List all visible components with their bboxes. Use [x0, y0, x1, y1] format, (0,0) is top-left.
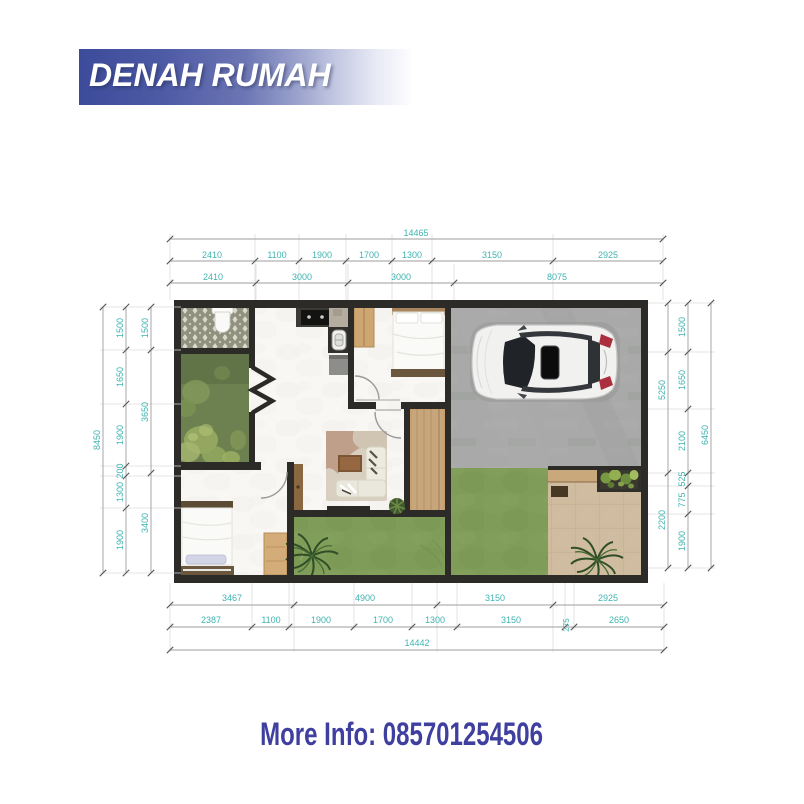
svg-text:8450: 8450: [92, 430, 102, 450]
svg-text:3400: 3400: [140, 513, 150, 533]
svg-text:2650: 2650: [609, 615, 629, 625]
svg-text:1300: 1300: [115, 482, 125, 502]
svg-text:6450: 6450: [700, 425, 710, 445]
svg-text:3150: 3150: [482, 250, 502, 260]
svg-text:2100: 2100: [677, 431, 687, 451]
svg-text:1500: 1500: [140, 318, 150, 338]
svg-text:1300: 1300: [402, 250, 422, 260]
svg-text:1300: 1300: [425, 615, 445, 625]
svg-text:1100: 1100: [261, 615, 280, 625]
svg-text:8075: 8075: [547, 272, 567, 282]
svg-text:1900: 1900: [115, 530, 125, 550]
svg-text:1900: 1900: [312, 250, 332, 260]
svg-text:1100: 1100: [267, 250, 286, 260]
svg-text:525: 525: [677, 471, 687, 486]
svg-text:3000: 3000: [391, 272, 411, 282]
svg-text:3150: 3150: [485, 593, 505, 603]
svg-text:1500: 1500: [115, 318, 125, 338]
svg-text:275: 275: [562, 618, 571, 632]
svg-text:1900: 1900: [677, 531, 687, 551]
svg-text:200: 200: [115, 463, 125, 478]
svg-text:1900: 1900: [115, 425, 125, 445]
svg-text:1700: 1700: [373, 615, 393, 625]
svg-text:5250: 5250: [657, 380, 667, 400]
svg-text:2200: 2200: [657, 510, 667, 530]
svg-text:1650: 1650: [115, 367, 125, 387]
svg-text:14465: 14465: [403, 228, 428, 238]
svg-text:2925: 2925: [598, 250, 618, 260]
svg-text:1900: 1900: [311, 615, 331, 625]
svg-text:1650: 1650: [677, 370, 687, 390]
svg-text:3000: 3000: [292, 272, 312, 282]
svg-text:2925: 2925: [598, 593, 618, 603]
svg-text:2410: 2410: [203, 272, 223, 282]
svg-text:3467: 3467: [222, 593, 242, 603]
svg-text:2387: 2387: [201, 615, 221, 625]
svg-text:3150: 3150: [501, 615, 521, 625]
svg-text:4900: 4900: [355, 593, 375, 603]
svg-text:1500: 1500: [677, 317, 687, 337]
svg-text:775: 775: [677, 492, 687, 507]
svg-text:3650: 3650: [140, 402, 150, 422]
svg-text:14442: 14442: [404, 638, 429, 648]
svg-text:1700: 1700: [359, 250, 379, 260]
svg-text:2410: 2410: [202, 250, 222, 260]
